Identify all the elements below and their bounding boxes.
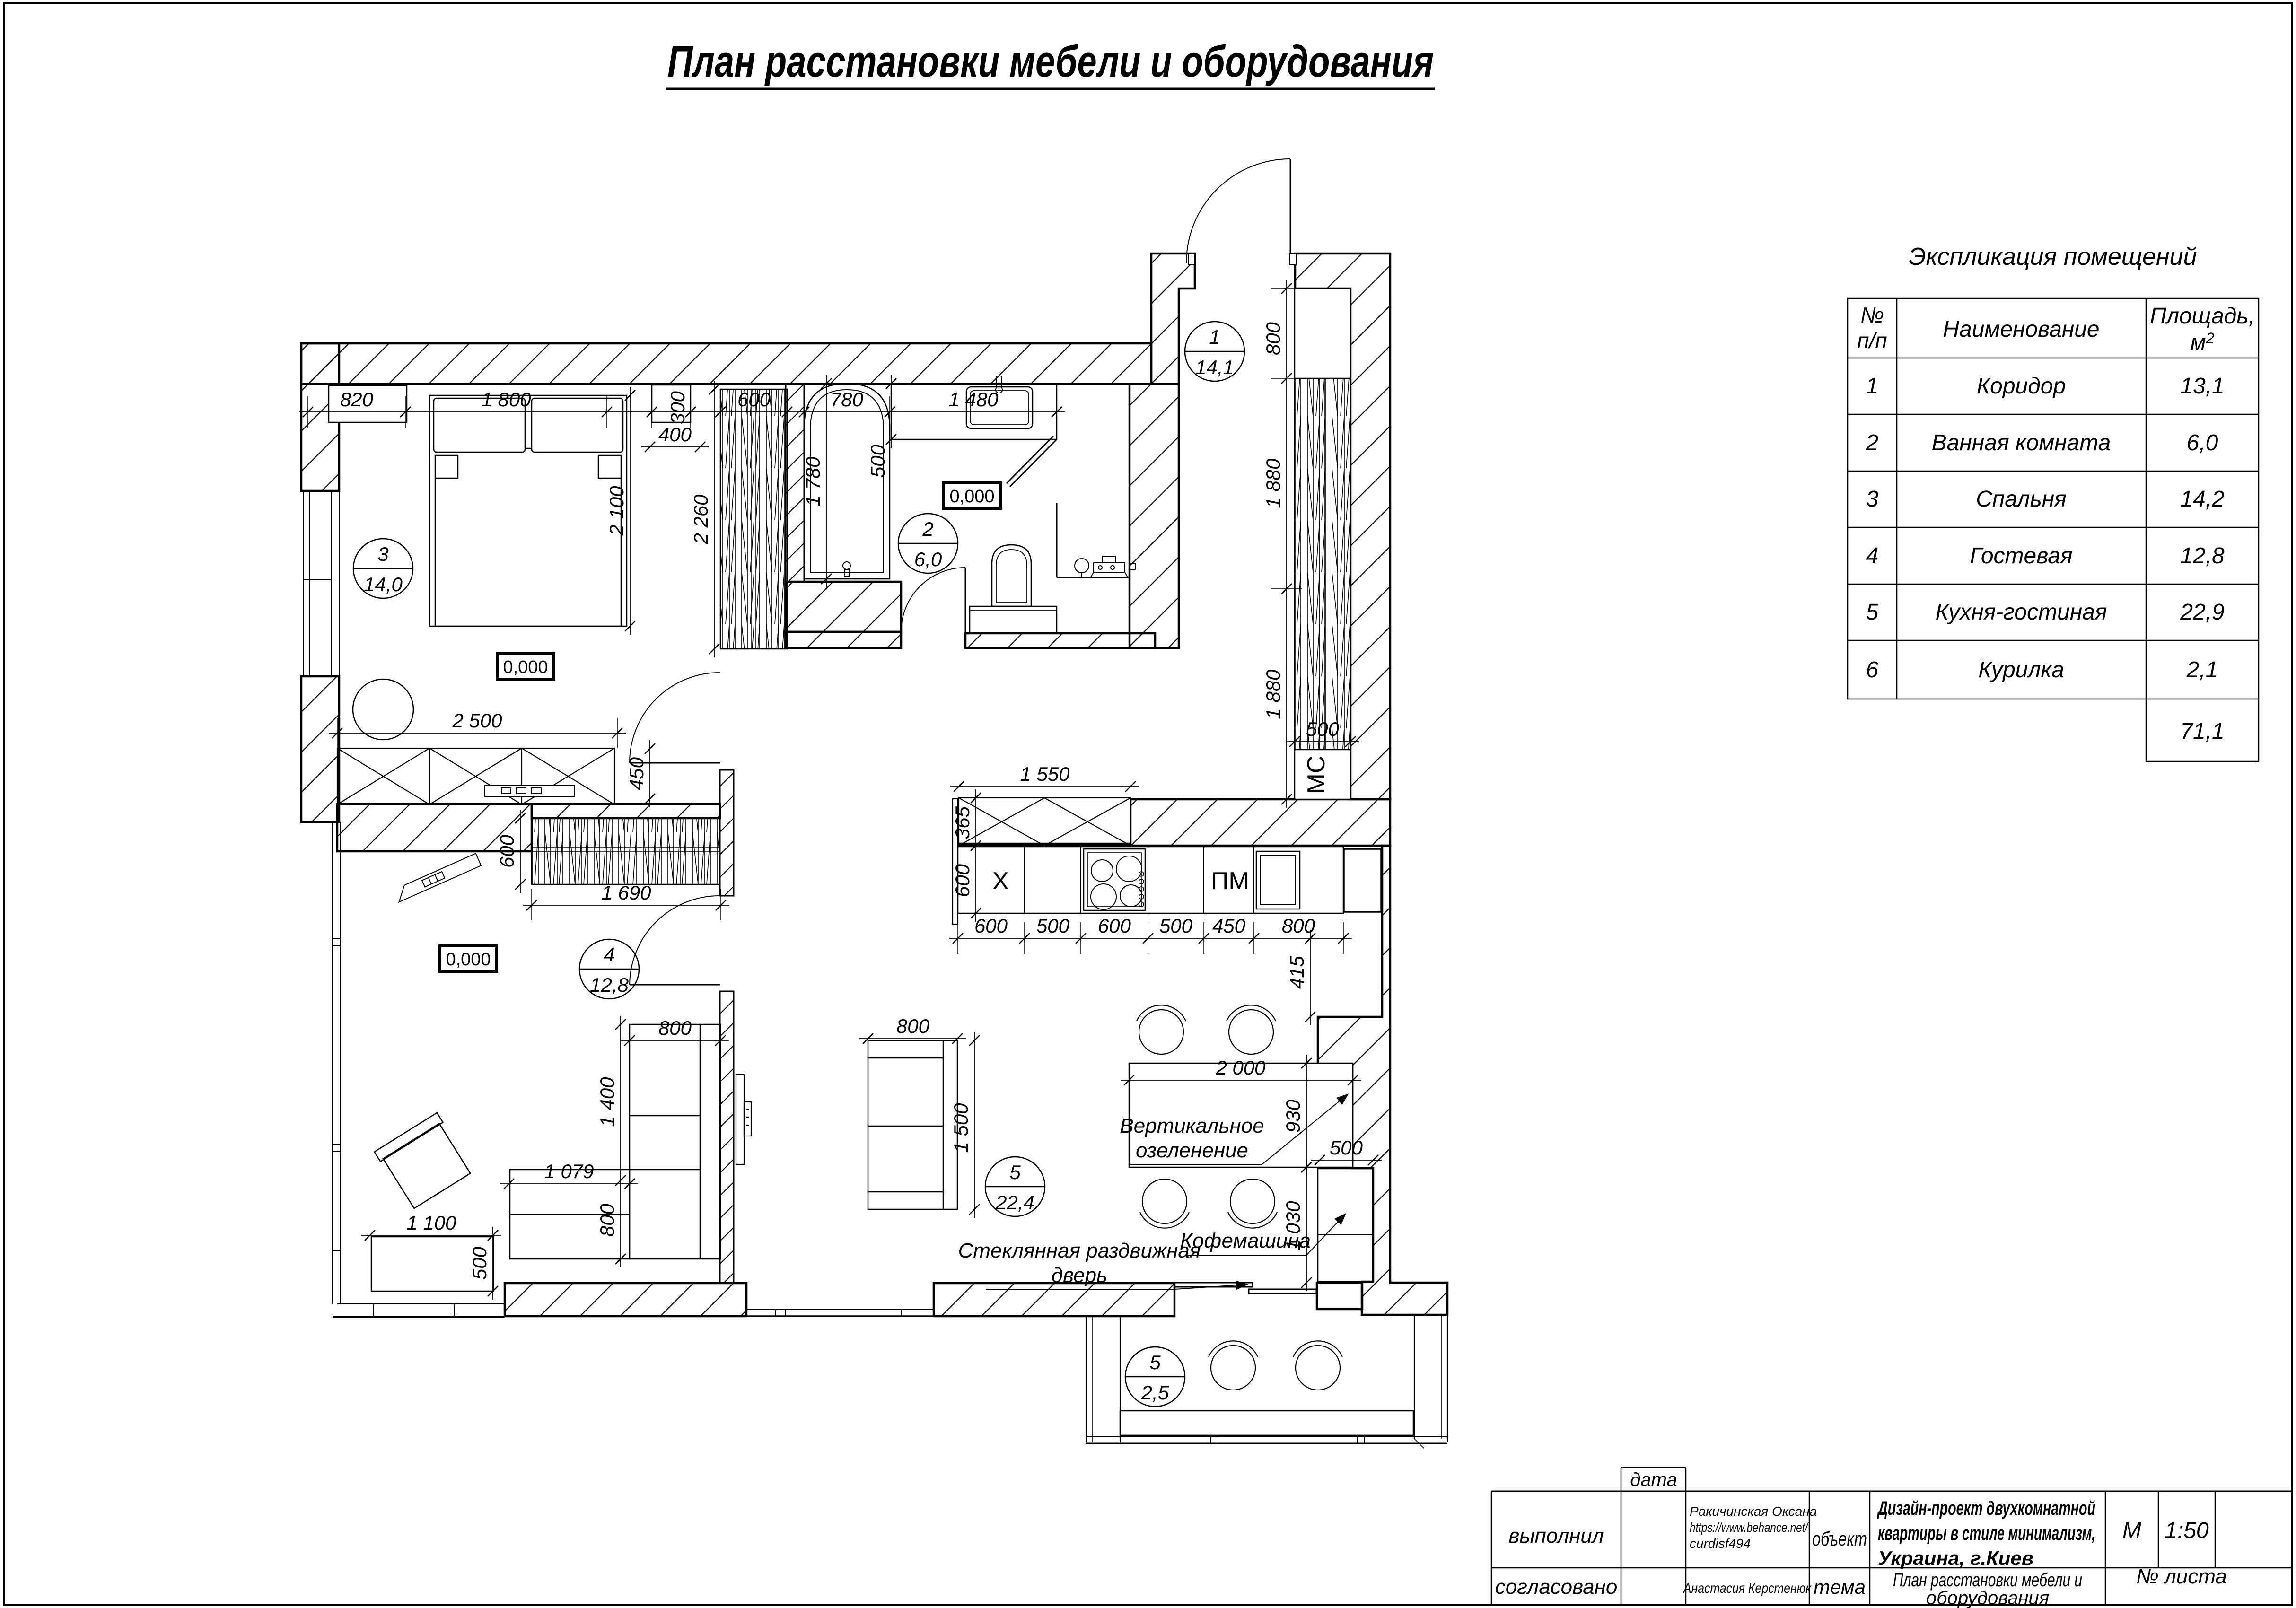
svg-text:1 780: 1 780 [802, 456, 824, 507]
svg-text:Площадь,: Площадь, [2150, 304, 2255, 329]
svg-text:1:50: 1:50 [2165, 1518, 2209, 1543]
svg-text:600: 600 [496, 834, 518, 868]
svg-text:1 480: 1 480 [948, 388, 999, 411]
svg-text:800: 800 [658, 1017, 692, 1039]
svg-text:820: 820 [340, 388, 374, 411]
svg-text:Вертикальное: Вертикальное [1120, 1114, 1264, 1137]
svg-text:1 079: 1 079 [544, 1160, 594, 1182]
svg-text:1 400: 1 400 [596, 1077, 618, 1127]
svg-text:п/п: п/п [1857, 328, 1887, 353]
svg-text:600: 600 [737, 388, 771, 411]
svg-text:согласовано: согласовано [1495, 1575, 1618, 1599]
svg-text:https://www.behance.net/: https://www.behance.net/ [1690, 1520, 1809, 1535]
svg-text:12,8: 12,8 [590, 974, 629, 996]
svg-text:М: М [2122, 1518, 2141, 1543]
svg-text:3: 3 [1866, 487, 1879, 512]
svg-text:2: 2 [922, 518, 933, 540]
svg-text:800: 800 [1262, 322, 1284, 355]
svg-text:Спальня: Спальня [1976, 487, 2067, 512]
svg-text:930: 930 [1282, 1099, 1304, 1133]
svg-text:Х: Х [992, 867, 1009, 895]
svg-text:1 800: 1 800 [481, 388, 531, 411]
svg-text:500: 500 [1036, 915, 1070, 937]
svg-text:365: 365 [951, 806, 973, 839]
svg-text:Коридор: Коридор [1977, 374, 2066, 399]
svg-text:2: 2 [1866, 430, 1879, 455]
svg-text:450: 450 [1212, 915, 1246, 937]
svg-text:0,000: 0,000 [446, 950, 491, 970]
svg-text:3: 3 [377, 543, 388, 565]
svg-text:5: 5 [1009, 1161, 1021, 1183]
svg-text:Дизайн-проект двухкомнатной: Дизайн-проект двухкомнатной [1877, 1497, 2095, 1519]
svg-text:Экспликация помещений: Экспликация помещений [1909, 243, 2197, 271]
svg-text:500: 500 [1330, 1136, 1363, 1159]
svg-text:14,0: 14,0 [364, 573, 403, 595]
svg-text:4: 4 [604, 944, 614, 966]
svg-text:500: 500 [867, 444, 889, 478]
svg-text:№: № [1860, 303, 1884, 327]
svg-text:озеленение: озеленение [1136, 1139, 1248, 1162]
svg-text:12,8: 12,8 [2180, 543, 2225, 568]
svg-text:2 000: 2 000 [1215, 1057, 1266, 1079]
svg-text:415: 415 [1286, 955, 1308, 989]
svg-text:300: 300 [666, 391, 689, 424]
svg-text:500: 500 [468, 1246, 491, 1280]
svg-text:1 880: 1 880 [1262, 458, 1284, 508]
svg-text:2,5: 2,5 [1141, 1381, 1169, 1404]
svg-text:curdisf494: curdisf494 [1690, 1536, 1751, 1551]
svg-text:Гостевая: Гостевая [1970, 543, 2072, 568]
svg-text:22,4: 22,4 [995, 1191, 1034, 1214]
svg-text:500: 500 [1306, 718, 1340, 740]
svg-text:Ванная комната: Ванная комната [1932, 430, 2111, 455]
svg-text:План расстановки мебели и обор: План расстановки мебели и оборудования [667, 36, 1434, 86]
svg-text:13,1: 13,1 [2180, 374, 2224, 399]
svg-text:№ листа: № листа [2136, 1565, 2227, 1588]
svg-text:1: 1 [1866, 374, 1879, 399]
svg-text:Стеклянная раздвижная: Стеклянная раздвижная [958, 1239, 1201, 1262]
svg-text:5: 5 [1866, 600, 1879, 625]
svg-text:71,1: 71,1 [2180, 719, 2224, 744]
svg-text:Анастасия Керстенюк: Анастасия Керстенюк [1683, 1581, 1812, 1596]
svg-text:1 690: 1 690 [601, 882, 651, 904]
svg-text:6: 6 [1866, 657, 1879, 682]
svg-text:600: 600 [1098, 915, 1131, 937]
svg-text:1 100: 1 100 [406, 1212, 456, 1234]
svg-text:22,9: 22,9 [2180, 600, 2224, 625]
svg-text:Украина, г.Киев: Украина, г.Киев [1878, 1547, 2033, 1569]
svg-text:600: 600 [951, 864, 973, 897]
svg-text:5: 5 [1149, 1351, 1161, 1373]
svg-text:МС: МС [1303, 756, 1330, 794]
svg-text:дата: дата [1630, 1469, 1677, 1490]
svg-text:2,1: 2,1 [2186, 657, 2218, 682]
svg-text:2 260: 2 260 [690, 494, 712, 545]
svg-text:квартиры в стиле минимализм,: квартиры в стиле минимализм, [1878, 1522, 2095, 1544]
svg-text:оборудования: оборудования [1926, 1588, 2049, 1608]
svg-text:выполнил: выполнил [1508, 1524, 1604, 1547]
svg-text:0,000: 0,000 [949, 487, 994, 507]
svg-text:Ракичинская Оксана: Ракичинская Оксана [1690, 1504, 1817, 1519]
svg-text:1 550: 1 550 [1020, 763, 1070, 785]
svg-text:1 500: 1 500 [950, 1103, 972, 1153]
svg-text:тема: тема [1814, 1576, 1866, 1598]
svg-text:600: 600 [974, 915, 1008, 937]
svg-text:6,0: 6,0 [2187, 430, 2218, 455]
svg-text:дверь: дверь [1052, 1264, 1107, 1287]
svg-text:2 500: 2 500 [452, 709, 502, 732]
svg-text:780: 780 [830, 388, 864, 411]
svg-text:объект: объект [1812, 1528, 1867, 1550]
svg-text:800: 800 [596, 1203, 618, 1237]
svg-text:Кухня-гостиная: Кухня-гостиная [1935, 600, 2107, 625]
svg-text:400: 400 [658, 423, 692, 446]
svg-text:2 100: 2 100 [605, 486, 628, 536]
svg-text:800: 800 [896, 1015, 930, 1037]
svg-text:500: 500 [1159, 915, 1193, 937]
svg-text:Наименование: Наименование [1943, 317, 2099, 342]
svg-text:0,000: 0,000 [503, 657, 548, 677]
svg-text:Курилка: Курилка [1978, 657, 2064, 682]
svg-text:6,0: 6,0 [914, 548, 942, 570]
svg-text:1 880: 1 880 [1262, 669, 1284, 719]
svg-text:14,2: 14,2 [2180, 487, 2224, 512]
svg-text:1: 1 [1209, 326, 1220, 348]
svg-text:450: 450 [625, 757, 648, 790]
svg-text:14,1: 14,1 [1195, 356, 1234, 378]
svg-text:4: 4 [1866, 543, 1879, 568]
svg-text:ПМ: ПМ [1211, 867, 1249, 895]
